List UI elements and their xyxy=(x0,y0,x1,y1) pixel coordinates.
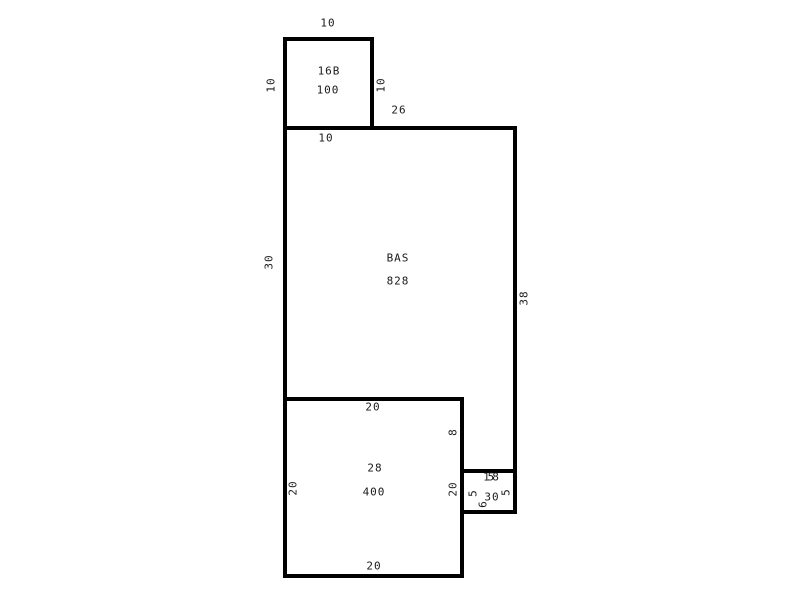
lower-addition-code: 28 xyxy=(367,463,382,474)
lower-addition-dim-left: 20 xyxy=(288,480,299,495)
base-area-code: BAS xyxy=(387,253,410,264)
top-addition-code: 16B xyxy=(318,66,341,77)
base-area-right-edge xyxy=(513,126,517,514)
small-porch-code: 158 xyxy=(483,472,497,483)
base-area-area: 828 xyxy=(387,276,410,287)
base-area-dim-left: 30 xyxy=(264,254,275,269)
lower-addition-area: 400 xyxy=(363,487,386,498)
base-area-dim-top: 26 xyxy=(391,105,406,116)
small-porch-dim-right: 5 xyxy=(501,488,512,496)
small-porch-dim-bottom: 6 xyxy=(478,500,489,508)
top-addition-dim-right: 10 xyxy=(376,77,387,92)
top-addition-dim-bottom: 10 xyxy=(318,133,333,144)
floor-plan-sketch: 10 10 10 10 16B 100 26 30 38 BAS 828 20 … xyxy=(0,0,800,600)
top-addition-dim-left: 10 xyxy=(266,77,277,92)
lower-addition-dim-right-upper: 8 xyxy=(448,428,459,436)
lower-addition-dim-right: 20 xyxy=(448,481,459,496)
base-area-left-edge xyxy=(283,130,287,397)
top-addition-dim-top: 10 xyxy=(320,18,335,29)
small-porch-dim-left: 5 xyxy=(468,489,479,497)
top-addition-area: 100 xyxy=(317,85,340,96)
lower-addition-dim-top: 20 xyxy=(365,402,380,413)
base-area-top-edge xyxy=(283,126,517,130)
base-area-dim-right: 38 xyxy=(519,290,530,305)
lower-addition-dim-bottom: 20 xyxy=(366,561,381,572)
